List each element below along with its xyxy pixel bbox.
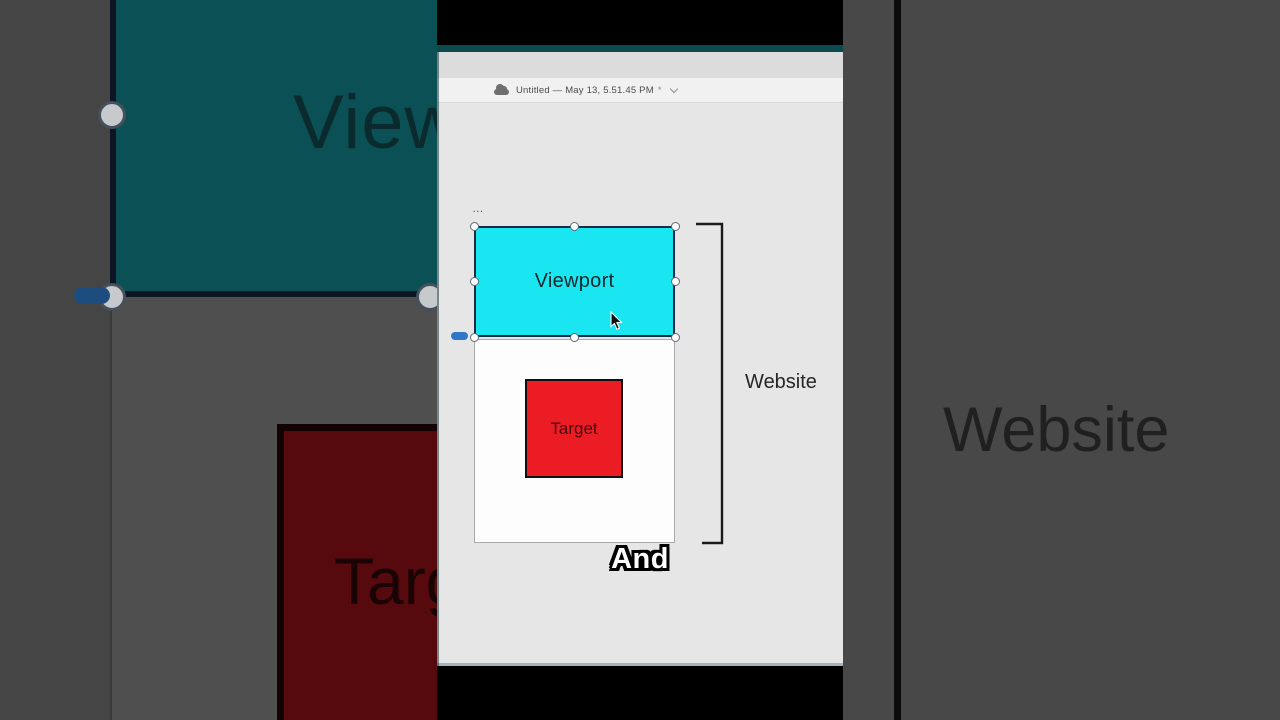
viewport-shape-label: Viewport: [535, 270, 615, 293]
document-menu-button[interactable]: Untitled — May 13, 5.51.45 PM *: [494, 85, 677, 96]
caption-text: And: [437, 543, 843, 576]
unsaved-indicator: *: [658, 85, 662, 96]
selection-more-dots-icon[interactable]: ···: [473, 207, 484, 216]
background-selection-handle: [416, 283, 437, 311]
background-target-shape: Target: [277, 424, 437, 720]
canvas[interactable]: Target Viewport ··· Website: [437, 103, 843, 663]
target-shape[interactable]: Target: [525, 379, 623, 478]
selection-accent-pill[interactable]: [451, 332, 468, 340]
background-frame-edge-line: [110, 297, 112, 720]
cloud-icon: [494, 89, 509, 95]
letterbox-top: [437, 0, 843, 45]
app-window: Untitled — May 13, 5.51.45 PM * Target V…: [437, 0, 843, 720]
background-bracket-line: [894, 0, 901, 720]
mouse-cursor-icon: [609, 311, 624, 332]
window-top-edge: [437, 45, 843, 52]
selection-handle-top-mid[interactable]: [570, 222, 579, 231]
selection-handle-top-right[interactable]: [671, 222, 680, 231]
viewport-shape[interactable]: Viewport: [474, 226, 675, 337]
titlebar: Untitled — May 13, 5.51.45 PM *: [437, 78, 843, 103]
selection-handle-top-left[interactable]: [470, 222, 479, 231]
selection-handle-bottom-left[interactable]: [470, 333, 479, 342]
document-title: Untitled — May 13, 5.51.45 PM: [516, 85, 654, 96]
background-viewport-label: Viewport: [293, 79, 437, 166]
blurred-background-left: Viewport Target: [0, 0, 437, 720]
background-website-label: Website: [943, 394, 1253, 466]
blurred-background-right: Website: [843, 0, 1280, 720]
bracket-label: Website: [733, 371, 829, 394]
bracket-shape[interactable]: [693, 222, 727, 546]
background-target-label: Target: [334, 543, 437, 619]
window-chrome-strip: [437, 52, 843, 78]
selection-handle-right-mid[interactable]: [671, 277, 680, 286]
background-selection-handle: [98, 101, 126, 129]
background-viewport-shape: Viewport: [110, 0, 437, 297]
selection-handle-bottom-right[interactable]: [671, 333, 680, 342]
background-selection-accent-pill: [74, 287, 110, 304]
letterbox-bottom: [437, 666, 843, 720]
chevron-down-icon: [669, 84, 677, 92]
selection-handle-bottom-mid[interactable]: [570, 333, 579, 342]
target-shape-label: Target: [550, 419, 597, 439]
video-frame: Viewport Target Website Untitled — May 1…: [0, 0, 1280, 720]
selection-handle-left-mid[interactable]: [470, 277, 479, 286]
